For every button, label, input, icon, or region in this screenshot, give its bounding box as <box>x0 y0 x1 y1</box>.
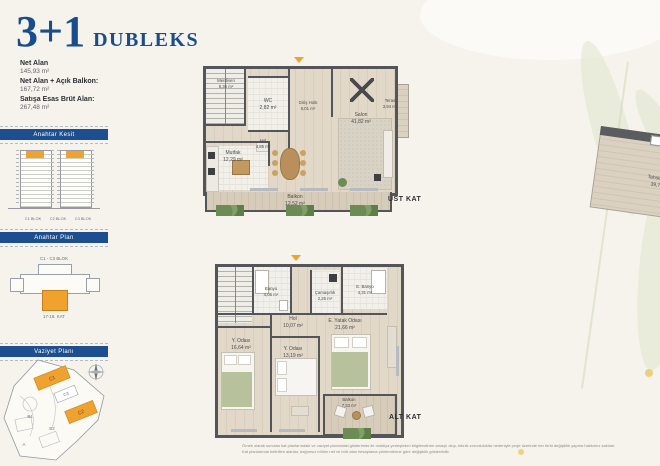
dresser <box>291 406 309 416</box>
key-plan-floor-label: 17-18. KAT <box>8 314 100 319</box>
window <box>231 429 257 432</box>
room-label-wc: WC 2,82 m² <box>260 98 277 111</box>
title-type: DUBLEKS <box>93 29 199 52</box>
washer <box>329 274 337 282</box>
floorplate <box>10 278 24 292</box>
room-label-tahsisli-alan: Tahsisli Alan 39,76 m² <box>646 174 660 191</box>
planter <box>350 205 378 216</box>
window <box>396 346 399 376</box>
partition <box>290 267 292 313</box>
sofa <box>383 130 393 178</box>
room-label-y-odasi-1: Y. Odası 16,64 m² <box>231 338 251 351</box>
site-plan: C1 C3 C2 B1 B2 A <box>0 356 112 466</box>
area-row: Net Alan + Açık Balkon: 167,72 m² <box>20 78 170 93</box>
divider <box>0 143 108 144</box>
area-value: 145,93 m² <box>20 68 170 75</box>
title-number: 3+1 <box>16 10 85 54</box>
room-label-merdiven: Merdiven 8,36 m² <box>217 78 235 89</box>
partition <box>270 336 320 338</box>
upper-floor-caption: ÜST KAT <box>388 196 421 203</box>
block-label: C3 BLOK <box>68 216 98 221</box>
window <box>350 188 378 191</box>
tower-outline <box>20 150 52 208</box>
partition <box>244 69 246 124</box>
room-label-lower-hol: Hol 10,07 m² <box>283 316 303 329</box>
key-plan-block-label: C1 - C3 BLOK <box>8 256 100 261</box>
ground-line <box>8 208 100 209</box>
roof-deck: Tahsisli Alan 39,76 m² <box>590 126 660 226</box>
partition <box>341 267 343 313</box>
room-label-upper-balkon: Balkon 12,52 m² <box>285 194 305 207</box>
partition <box>248 76 288 78</box>
site-label-b1: B1 <box>27 414 33 419</box>
dining-chair <box>272 170 278 176</box>
room-label-camasirlik: Çamaşırlık 2,25 m² <box>315 290 336 301</box>
partition <box>310 270 312 313</box>
highlight-floor <box>26 151 44 158</box>
room-label-hol: Hol 4,85 m² <box>256 138 271 149</box>
entry-arrow <box>294 57 304 63</box>
lower-floor-plan: Banyo 4,05 m² Çamaşırlık 2,25 m² E. Bany… <box>213 256 443 451</box>
pillow <box>277 378 287 392</box>
cooktop <box>208 168 215 175</box>
sink <box>208 152 215 159</box>
dining-chair <box>300 160 306 166</box>
decor-wash <box>420 0 660 60</box>
key-section-diagram: C1 BLOK C2 BLOK C3 BLOK <box>8 148 100 226</box>
blanket <box>332 352 368 387</box>
pillow <box>277 361 287 375</box>
lower-floor-caption: ALT KAT <box>389 414 421 421</box>
armchair-set <box>350 78 374 102</box>
partition <box>318 336 320 432</box>
partition <box>331 69 333 117</box>
room-label-mutfak: Mutfak 12,29 m² <box>223 150 243 163</box>
room-label-y-odasi-2: Y. Odası 13,19 m² <box>283 346 303 359</box>
upper-floor-plan: Tahsisli Alan 39,76 m² <box>200 56 545 226</box>
area-value: 167,72 m² <box>20 86 170 93</box>
tv-unit <box>374 174 381 181</box>
floor-ticks <box>16 150 19 206</box>
tower-outline <box>60 150 92 208</box>
blanket <box>222 372 252 407</box>
room-label-salon: Salon 41,82 m² <box>351 112 371 125</box>
dining-chair <box>272 150 278 156</box>
floor-ticks <box>91 150 94 206</box>
dining-chair <box>300 170 306 176</box>
planter <box>343 428 371 439</box>
planter <box>216 205 244 216</box>
dining-chair <box>300 150 306 156</box>
section-header-anahtar-plan: Anahtar Plan <box>0 232 108 243</box>
dining-chair <box>272 160 278 166</box>
deck-hatch <box>650 135 660 149</box>
partition <box>206 124 246 126</box>
page-title: 3+1 DUBLEKS <box>16 10 199 54</box>
decor-dot <box>645 369 653 377</box>
room-label-e-yatak-odasi: E. Yatak Odası 21,66 m² <box>328 318 361 331</box>
highlight-floor <box>66 151 84 158</box>
divider <box>0 229 108 230</box>
balcony-table <box>352 411 361 420</box>
section-header-kesit: Anahtar Kesit <box>0 129 108 140</box>
area-value: 267,48 m² <box>20 104 170 111</box>
partition <box>215 313 387 315</box>
area-row: Net Alan 145,93 m² <box>20 60 170 75</box>
partition <box>215 326 272 328</box>
dining-table <box>280 148 300 180</box>
room-label-teras: Teras 3,94 m² <box>383 98 398 109</box>
floor-ticks <box>51 150 54 206</box>
highlighted-unit <box>42 290 68 311</box>
divider <box>0 126 108 127</box>
toilet <box>279 300 288 311</box>
divider <box>0 343 108 344</box>
window <box>300 188 328 191</box>
partition <box>248 130 288 132</box>
room-label-e-banyo: E. Banyo 4,31 m² <box>356 284 373 295</box>
pillow <box>352 337 367 348</box>
partition <box>252 267 254 313</box>
room-label-lower-balkon: Balkon 7,33 m² <box>342 397 357 408</box>
floorplate <box>86 278 100 292</box>
disclaimer-line: Kat planlarında belirtilen alanlar, bağı… <box>242 449 652 455</box>
pillow <box>224 355 237 365</box>
area-row: Satışa Esas Brüt Alan: 267,48 m² <box>20 96 170 111</box>
area-label: Net Alan + Açık Balkon: <box>20 78 170 85</box>
key-plan-diagram: C1 - C3 BLOK 17-18. KAT <box>8 252 100 324</box>
area-label: Net Alan <box>20 60 170 67</box>
area-summary: Net Alan 145,93 m² Net Alan + Açık Balko… <box>20 60 170 114</box>
brochure-page: 3+1 DUBLEKS Net Alan 145,93 m² Net Alan … <box>0 0 660 466</box>
disclaimer: Örnek olarak sunulan kat planlarındaki v… <box>242 443 652 455</box>
partition <box>270 313 272 432</box>
window <box>279 429 305 432</box>
pillow <box>334 337 349 348</box>
room-label-banyo: Banyo 4,05 m² <box>264 286 279 297</box>
compass-icon <box>87 363 105 381</box>
area-label: Satışa Esas Brüt Alan: <box>20 96 170 103</box>
room-label-giris-holu: Giriş Holü 6,01 m² <box>299 100 318 111</box>
window <box>250 188 278 191</box>
divider <box>0 246 108 247</box>
site-label-a: A <box>23 442 26 447</box>
pillow <box>238 355 251 365</box>
salon-plant <box>338 178 347 187</box>
entry-arrow <box>291 255 301 261</box>
site-label-b2: B2 <box>49 426 55 431</box>
